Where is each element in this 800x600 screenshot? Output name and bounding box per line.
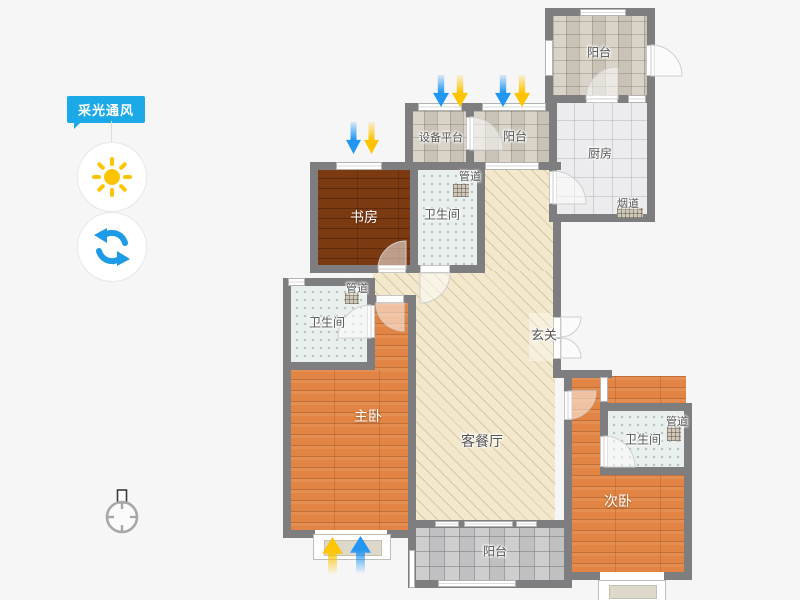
room-label-entry: 玄关 (531, 325, 557, 344)
room-label-study: 书房 (350, 207, 378, 227)
room-label-duct-mid: 管道 (346, 280, 368, 296)
room-label-flue: 烟道 (617, 195, 639, 211)
room-label-second-bedroom: 次卧 (604, 491, 632, 511)
room-label-duct-right: 管道 (666, 413, 688, 429)
room-label-balcony-top-right: 阳台 (587, 44, 611, 61)
door-arcs (0, 0, 800, 600)
room-label-kitchen: 厨房 (588, 145, 612, 162)
floorplan-page: { "panel": { "title": "采光通风" }, "rooms":… (0, 0, 800, 600)
room-label-balcony-top: 阳台 (503, 128, 527, 145)
room-label-duct-top: 管道 (459, 168, 481, 184)
room-label-bathroom-right: 卫生间 (625, 431, 661, 448)
room-label-balcony-bottom: 阳台 (483, 543, 507, 560)
room-label-living-dining: 客餐厅 (461, 431, 503, 451)
room-label-master-bedroom: 主卧 (354, 406, 382, 426)
room-label-equipment-platform: 设备平台 (419, 129, 463, 145)
room-label-bathroom-top: 卫生间 (424, 206, 460, 223)
room-label-bathroom-left: 卫生间 (309, 314, 345, 331)
